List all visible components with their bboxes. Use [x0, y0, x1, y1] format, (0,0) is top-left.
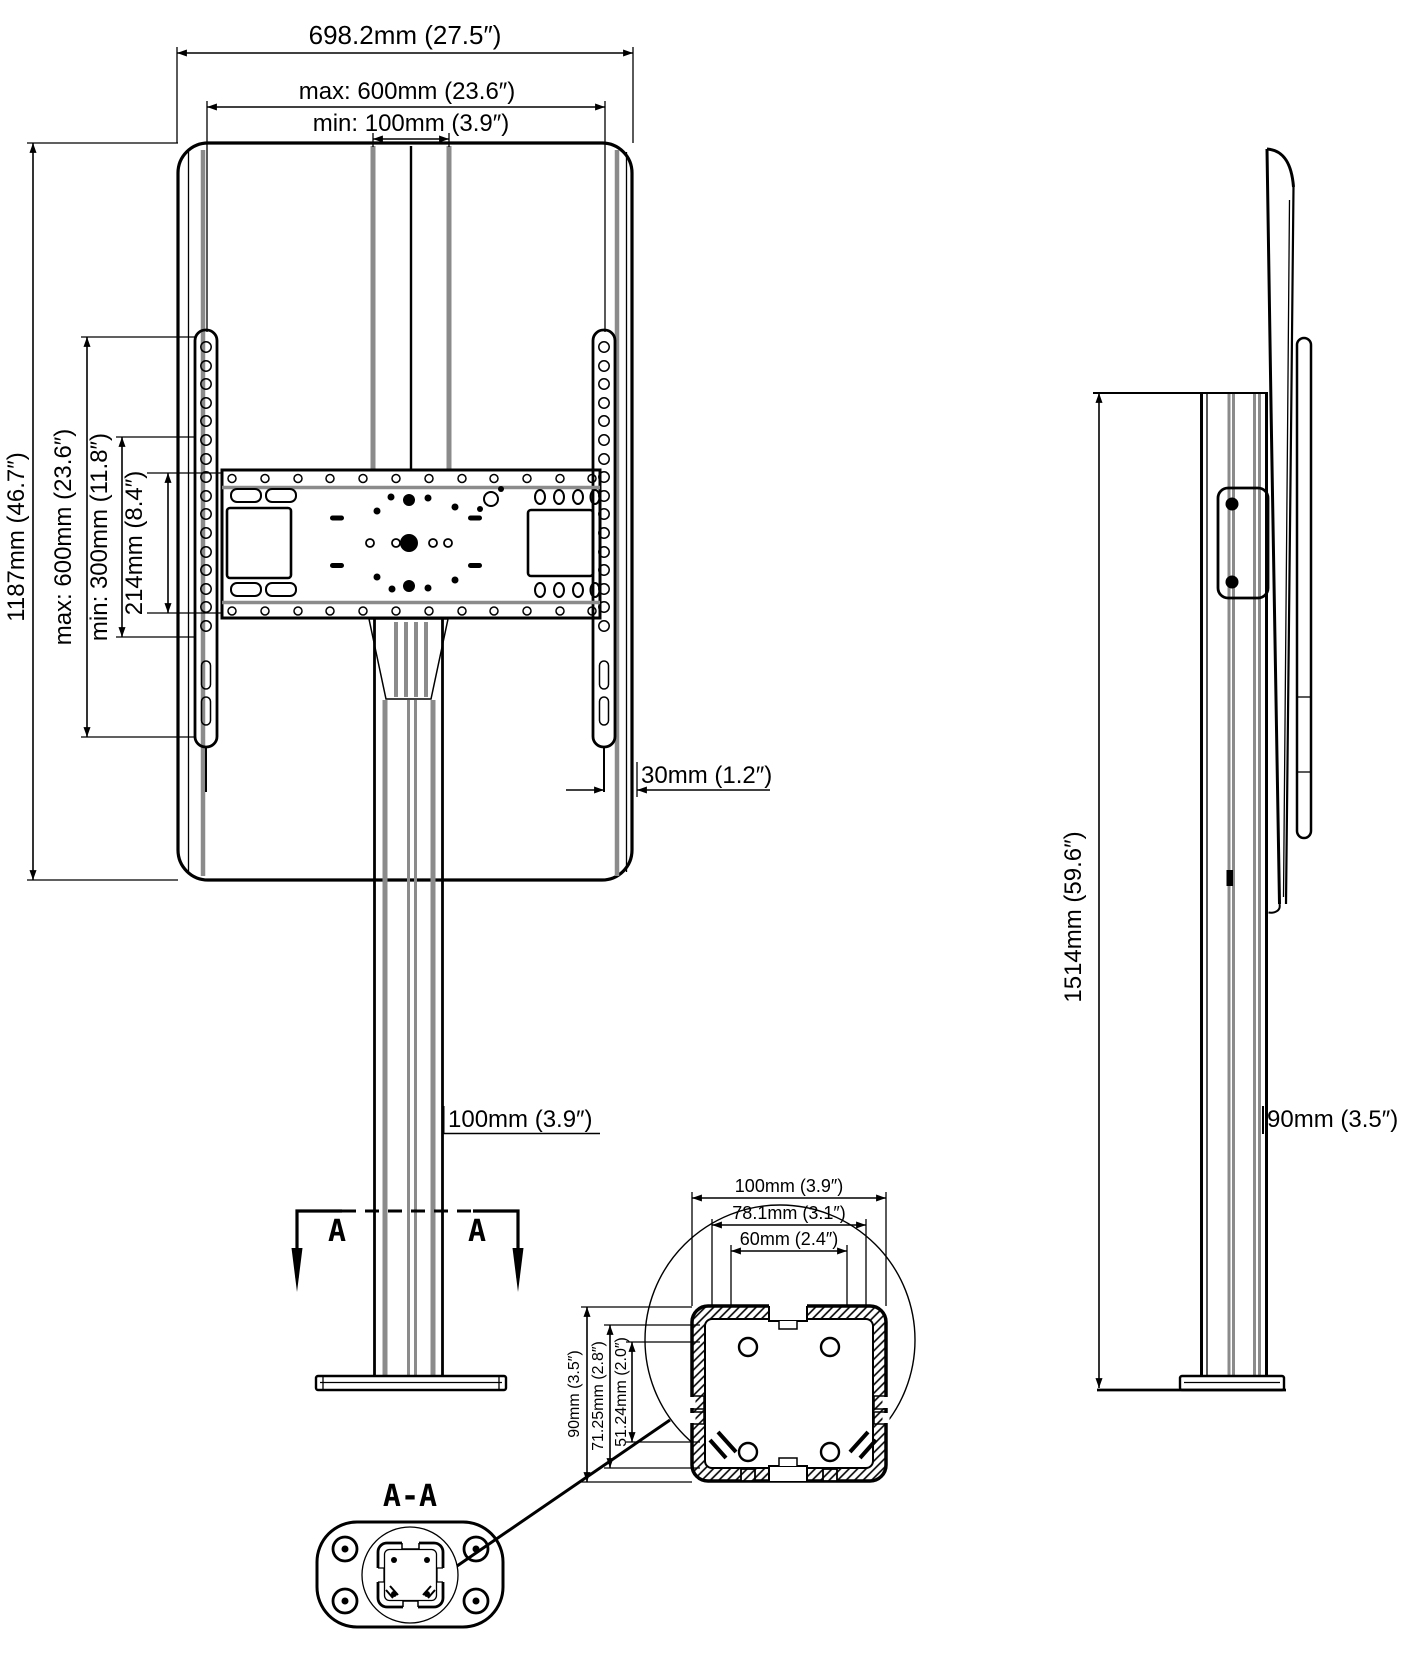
dim-front-min-height: min: 300mm (11.8″)	[86, 433, 113, 641]
column-front	[369, 618, 448, 1376]
dim-total-height: 1514mm (59.6″)	[1060, 831, 1087, 1002]
dim-detail-outer-width: 100mm (3.9″)	[735, 1176, 843, 1196]
vesa-plate	[222, 470, 600, 618]
dim-detail-groove-depth: 71.25mm (2.8″)	[590, 1341, 607, 1451]
front-view: A A 698.2mm (27.5″) max: 600mm (23.6″) m…	[3, 20, 772, 1390]
plate-center-hole	[400, 534, 418, 552]
cable-cutout-right	[528, 510, 593, 576]
front-dimensions: 698.2mm (27.5″) max: 600mm (23.6″) min: …	[3, 20, 772, 1134]
section-view-aa: A-A	[317, 1420, 670, 1627]
dim-detail-inner-depth: 51.24mm (2.0″)	[613, 1337, 630, 1447]
base-front	[316, 1376, 506, 1390]
detail-leader-line	[457, 1420, 670, 1566]
tv-panel-front	[178, 143, 632, 880]
technical-drawing: A A 698.2mm (27.5″) max: 600mm (23.6″) m…	[0, 0, 1415, 1654]
detail-view: 100mm (3.9″) 78.1mm (3.1″) 60mm (2.4″) 9…	[566, 1176, 915, 1482]
section-arrow-left	[292, 1248, 303, 1292]
column-profile	[689, 1302, 890, 1481]
dim-detail-inner-width: 60mm (2.4″)	[740, 1229, 838, 1249]
strap-funnel	[369, 619, 448, 699]
side-view: 1514mm (59.6″) 90mm (3.5″)	[1060, 149, 1398, 1390]
dim-bracket-offset: 30mm (1.2″)	[641, 762, 772, 789]
section-marker-a-right: A	[468, 1214, 486, 1249]
dim-column-depth: 90mm (3.5″)	[1267, 1106, 1398, 1133]
mounting-rail-right	[593, 330, 615, 792]
section-view-title: A-A	[383, 1479, 437, 1514]
dim-front-overall-height: 1187mm (46.7″)	[3, 452, 30, 621]
section-marker-a-left: A	[328, 1214, 346, 1249]
dim-front-overall-width: 698.2mm (27.5″)	[309, 20, 502, 50]
section-arrow-right	[513, 1248, 524, 1292]
dim-front-min-width: min: 100mm (3.9″)	[313, 110, 510, 137]
dim-plate-height: 214mm (8.4″)	[121, 471, 148, 616]
tv-panel-side	[1267, 149, 1311, 913]
technical-drawing-page: A A 698.2mm (27.5″) max: 600mm (23.6″) m…	[0, 0, 1415, 1654]
column-profile-small	[377, 1540, 445, 1611]
dim-detail-outer-depth: 90mm (3.5″)	[566, 1350, 583, 1437]
dim-detail-groove-width: 78.1mm (3.1″)	[732, 1203, 845, 1223]
base-side	[1097, 1376, 1286, 1390]
hanger-straps	[373, 146, 449, 470]
tv-hook-bar	[1297, 338, 1311, 838]
dim-column-width: 100mm (3.9″)	[448, 1106, 593, 1133]
dim-front-max-width: max: 600mm (23.6″)	[299, 78, 516, 105]
column-side	[1202, 393, 1267, 1376]
dim-front-max-height: max: 600mm (23.6″)	[50, 429, 77, 646]
mounting-rail-left	[195, 330, 217, 792]
cable-cutout-left	[227, 508, 291, 578]
